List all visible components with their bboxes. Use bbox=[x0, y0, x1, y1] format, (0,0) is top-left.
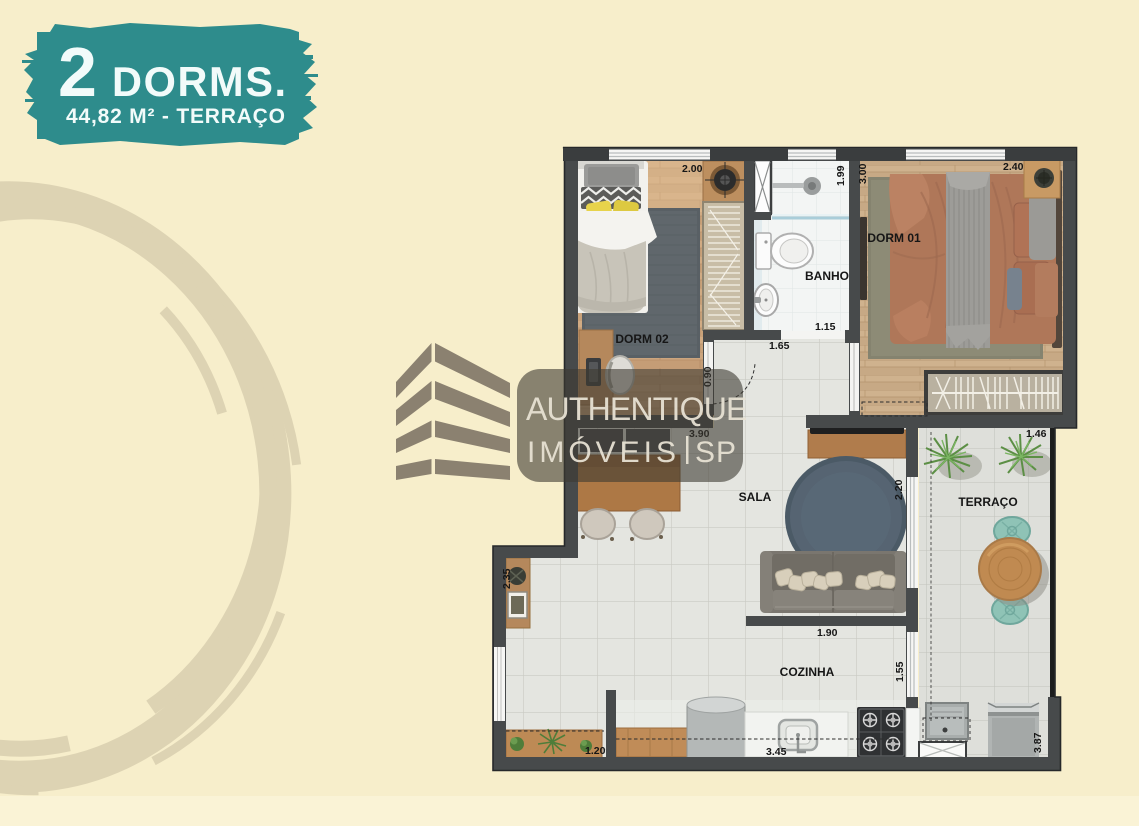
svg-text:1.90: 1.90 bbox=[817, 627, 838, 639]
svg-text:3.45: 3.45 bbox=[766, 746, 787, 758]
svg-text:1.55: 1.55 bbox=[894, 661, 906, 682]
svg-text:1.46: 1.46 bbox=[1026, 428, 1047, 440]
svg-text:1.65: 1.65 bbox=[769, 340, 790, 352]
svg-text:DORM 01: DORM 01 bbox=[867, 231, 921, 245]
svg-text:2.20: 2.20 bbox=[893, 479, 905, 500]
svg-text:1.99: 1.99 bbox=[835, 165, 847, 186]
svg-text:2: 2 bbox=[58, 33, 97, 111]
svg-text:AUTHENTIQUE: AUTHENTIQUE bbox=[526, 391, 747, 427]
svg-text:1.15: 1.15 bbox=[815, 321, 836, 333]
svg-text:BANHO: BANHO bbox=[805, 269, 849, 283]
svg-text:44,82 M² - TERRAÇO: 44,82 M² - TERRAÇO bbox=[66, 105, 286, 128]
svg-text:SP: SP bbox=[695, 436, 737, 469]
svg-text:3.87: 3.87 bbox=[1032, 732, 1044, 753]
svg-text:2.35: 2.35 bbox=[501, 568, 513, 589]
svg-text:COZINHA: COZINHA bbox=[780, 665, 835, 679]
svg-text:3.00: 3.00 bbox=[857, 163, 869, 184]
svg-text:2.40: 2.40 bbox=[1003, 161, 1024, 173]
svg-text:TERRAÇO: TERRAÇO bbox=[958, 495, 1017, 509]
svg-text:IMÓVEIS: IMÓVEIS bbox=[527, 436, 680, 469]
svg-text:2.00: 2.00 bbox=[682, 163, 703, 175]
svg-text:DORM 02: DORM 02 bbox=[615, 332, 669, 346]
svg-text:1.20: 1.20 bbox=[585, 745, 606, 757]
svg-text:DORMS.: DORMS. bbox=[112, 58, 288, 105]
svg-text:SALA: SALA bbox=[739, 490, 772, 504]
